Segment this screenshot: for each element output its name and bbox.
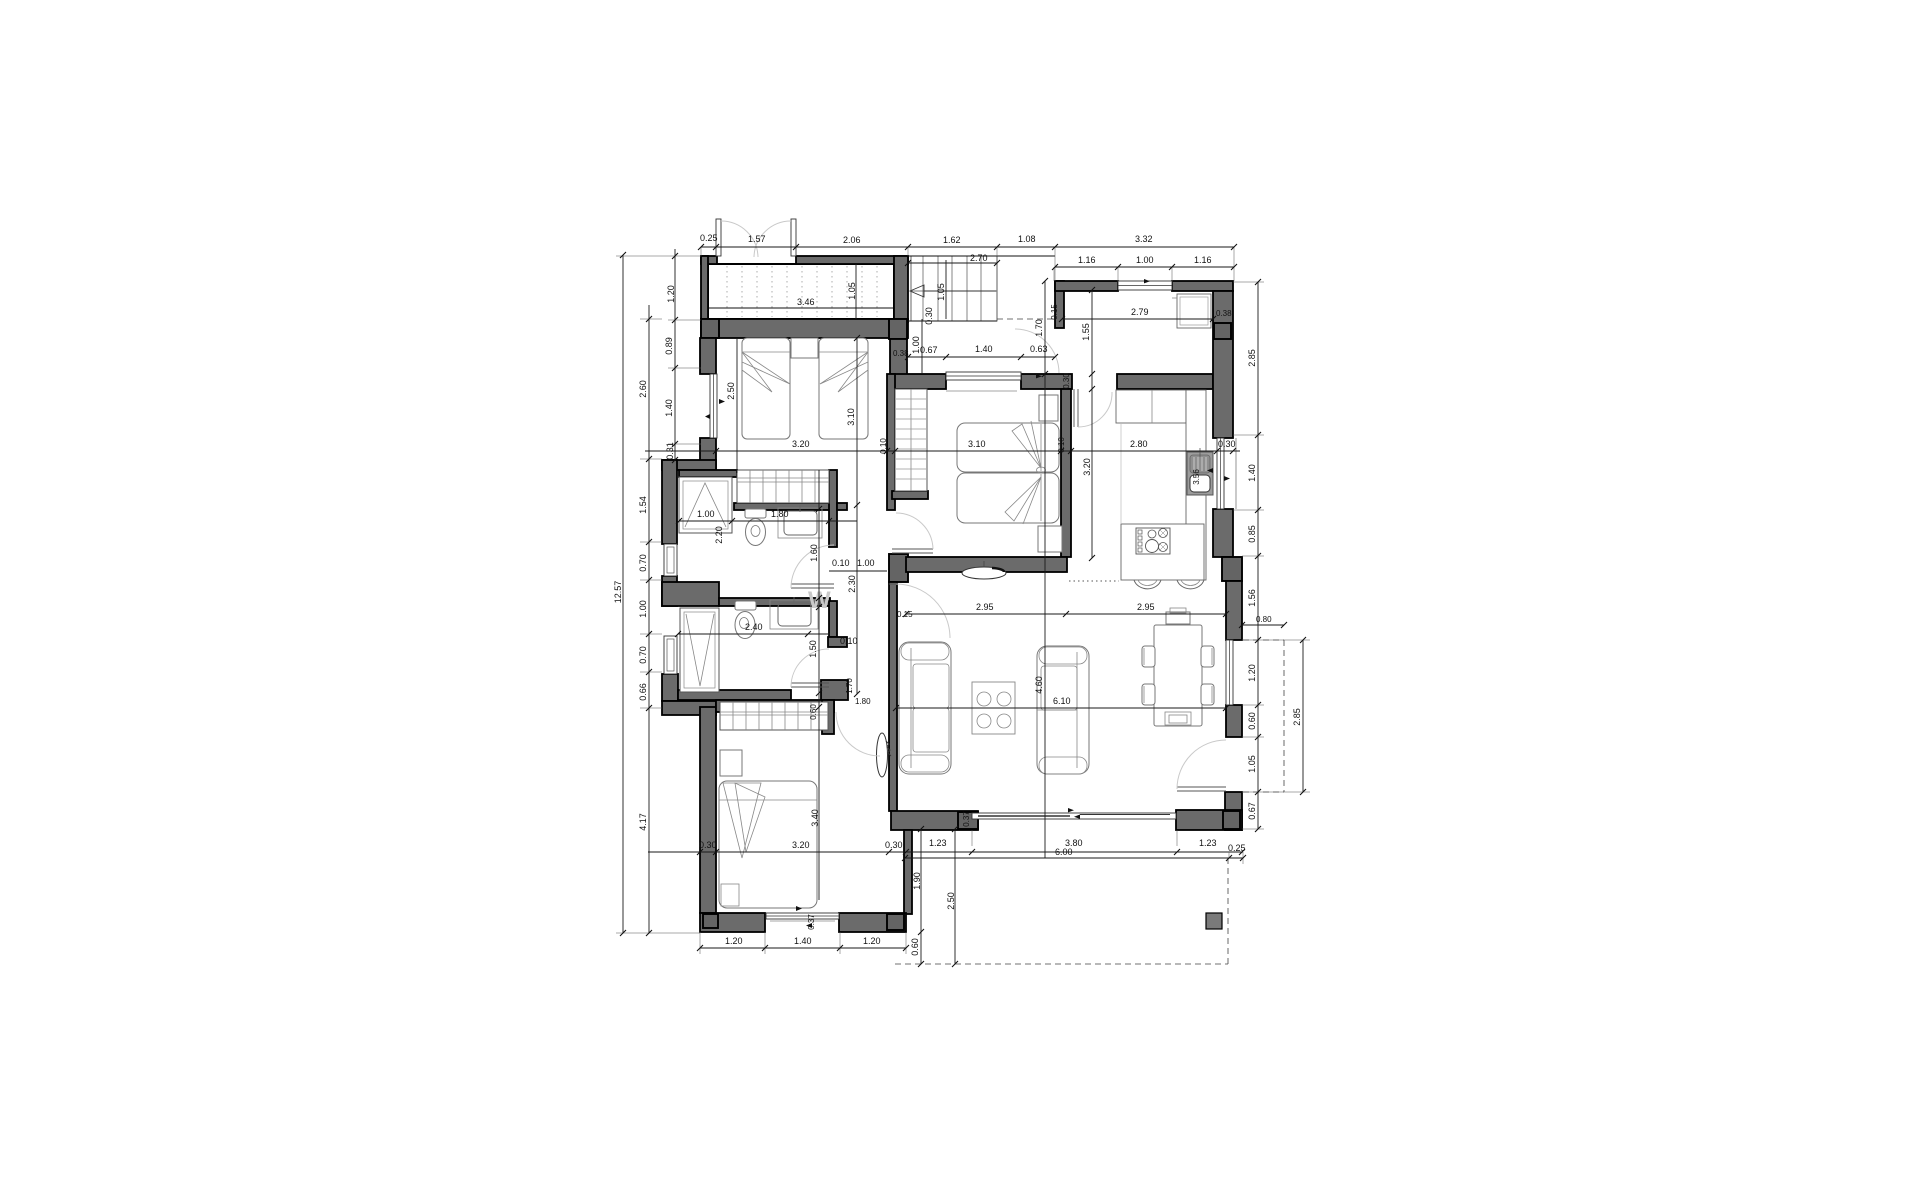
svg-text:0.60: 0.60 — [809, 704, 818, 720]
svg-text:1.40: 1.40 — [664, 399, 674, 417]
svg-text:1.23: 1.23 — [1199, 838, 1217, 848]
svg-text:2.30: 2.30 — [847, 575, 857, 593]
svg-text:1.40: 1.40 — [975, 344, 993, 354]
svg-text:0.60: 0.60 — [1247, 712, 1257, 730]
svg-text:0.37: 0.37 — [807, 914, 816, 930]
svg-text:1.20: 1.20 — [1247, 664, 1257, 682]
svg-text:1.08: 1.08 — [1018, 234, 1036, 244]
svg-text:1.00: 1.00 — [638, 600, 648, 618]
svg-text:2.06: 2.06 — [843, 235, 861, 245]
svg-text:1.00: 1.00 — [1136, 255, 1154, 265]
svg-text:3.10: 3.10 — [968, 439, 986, 449]
svg-text:0.10: 0.10 — [840, 636, 858, 646]
svg-text:1.05: 1.05 — [936, 283, 946, 301]
svg-text:W: W — [808, 587, 831, 614]
svg-text:3.56: 3.56 — [1192, 469, 1201, 485]
svg-text:3.40: 3.40 — [810, 809, 820, 827]
svg-text:2.95: 2.95 — [976, 602, 994, 612]
svg-text:2.50: 2.50 — [946, 892, 956, 910]
svg-text:0.30: 0.30 — [1218, 439, 1236, 449]
svg-text:2.70: 2.70 — [970, 253, 988, 263]
svg-text:1.57: 1.57 — [748, 234, 766, 244]
svg-text:2.50: 2.50 — [726, 382, 736, 400]
svg-text:1.16: 1.16 — [1194, 255, 1212, 265]
svg-text:6.00: 6.00 — [1055, 847, 1073, 857]
svg-text:0.89: 0.89 — [664, 337, 674, 355]
svg-text:0.67: 0.67 — [1247, 802, 1257, 820]
svg-text:1.62: 1.62 — [943, 235, 961, 245]
svg-text:2.85: 2.85 — [1247, 349, 1257, 367]
svg-text:0.70: 0.70 — [638, 646, 648, 664]
svg-text:1.00: 1.00 — [911, 336, 921, 354]
svg-text:1.60: 1.60 — [809, 544, 819, 562]
svg-text:0.85: 0.85 — [1247, 525, 1257, 543]
svg-text:1.80: 1.80 — [855, 697, 871, 706]
svg-text:0.66: 0.66 — [638, 683, 648, 701]
svg-text:1.40: 1.40 — [1247, 464, 1257, 482]
svg-text:2.60: 2.60 — [638, 380, 648, 398]
svg-text:1.20: 1.20 — [666, 285, 676, 303]
svg-text:1.00: 1.00 — [857, 558, 875, 568]
svg-text:0.10: 0.10 — [832, 558, 850, 568]
svg-text:0.30: 0.30 — [885, 840, 903, 850]
svg-text:0.70: 0.70 — [638, 554, 648, 572]
svg-text:2.40: 2.40 — [745, 622, 763, 632]
svg-text:2.79: 2.79 — [1131, 307, 1149, 317]
svg-text:0.25: 0.25 — [1228, 843, 1246, 853]
svg-text:1.50: 1.50 — [808, 640, 818, 658]
svg-text:0.10: 0.10 — [1057, 437, 1066, 453]
svg-text:1.55: 1.55 — [1081, 323, 1091, 341]
svg-text:0.15: 0.15 — [1050, 304, 1059, 320]
svg-text:0.31: 0.31 — [665, 442, 675, 460]
svg-text:1.70: 1.70 — [845, 678, 854, 694]
svg-text:12.57: 12.57 — [613, 581, 623, 604]
svg-text:1.40: 1.40 — [794, 936, 812, 946]
svg-text:1.80: 1.80 — [771, 509, 789, 519]
svg-text:6.10: 6.10 — [1053, 696, 1071, 706]
svg-text:4.60: 4.60 — [1034, 676, 1044, 694]
svg-text:1.56: 1.56 — [1247, 589, 1257, 607]
svg-text:1.16: 1.16 — [1078, 255, 1096, 265]
svg-text:2.85: 2.85 — [1292, 708, 1302, 726]
svg-text:0.67: 0.67 — [920, 345, 938, 355]
svg-text:0.60: 0.60 — [910, 938, 920, 956]
svg-text:0.30: 0.30 — [1062, 373, 1071, 389]
svg-text:0.38: 0.38 — [893, 349, 909, 358]
svg-text:1.20: 1.20 — [863, 936, 881, 946]
svg-text:2.95: 2.95 — [1137, 602, 1155, 612]
svg-text:3.20: 3.20 — [792, 840, 810, 850]
svg-text:1.05: 1.05 — [1247, 755, 1257, 773]
svg-text:3.20: 3.20 — [792, 439, 810, 449]
svg-text:2.20: 2.20 — [714, 526, 724, 544]
svg-text:3.32: 3.32 — [1135, 234, 1153, 244]
svg-text:1.90: 1.90 — [912, 872, 922, 890]
svg-text:3.46: 3.46 — [797, 297, 815, 307]
svg-text:3.10: 3.10 — [846, 408, 856, 426]
svg-text:1.70: 1.70 — [1034, 319, 1044, 337]
svg-text:1.23: 1.23 — [929, 838, 947, 848]
svg-text:0.37: 0.37 — [962, 811, 971, 827]
svg-text:0.80: 0.80 — [1256, 615, 1272, 624]
svg-text:3.20: 3.20 — [1082, 458, 1092, 476]
svg-text:0.15: 0.15 — [897, 610, 913, 619]
svg-text:0.10: 0.10 — [879, 438, 888, 454]
svg-text:1.05: 1.05 — [847, 282, 857, 300]
svg-text:1.20: 1.20 — [725, 936, 743, 946]
svg-text:0.38: 0.38 — [1216, 309, 1232, 318]
svg-text:0.63: 0.63 — [1030, 344, 1048, 354]
svg-text:4.17: 4.17 — [638, 813, 648, 831]
svg-text:1.54: 1.54 — [638, 496, 648, 514]
svg-text:0.25: 0.25 — [700, 233, 718, 243]
svg-text:0.30: 0.30 — [924, 307, 934, 325]
svg-text:0.30: 0.30 — [699, 840, 717, 850]
svg-text:1.00: 1.00 — [697, 509, 715, 519]
svg-text:2.80: 2.80 — [1130, 439, 1148, 449]
